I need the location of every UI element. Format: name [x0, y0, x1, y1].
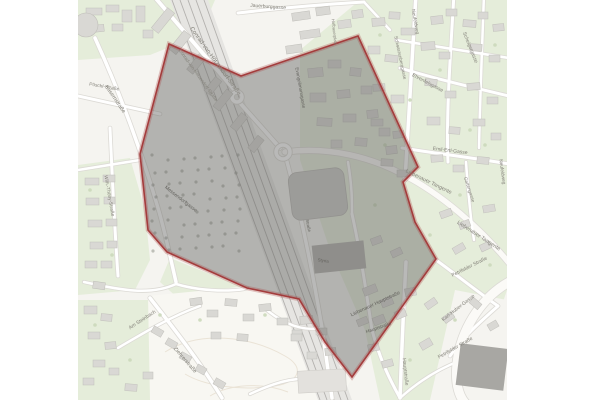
map-canvas[interactable]: Conrad-von-Hötzendorf-Straße Conrad-von-…	[78, 0, 507, 400]
map-screenshot: Conrad-von-Hötzendorf-Straße Conrad-von-…	[0, 0, 600, 400]
